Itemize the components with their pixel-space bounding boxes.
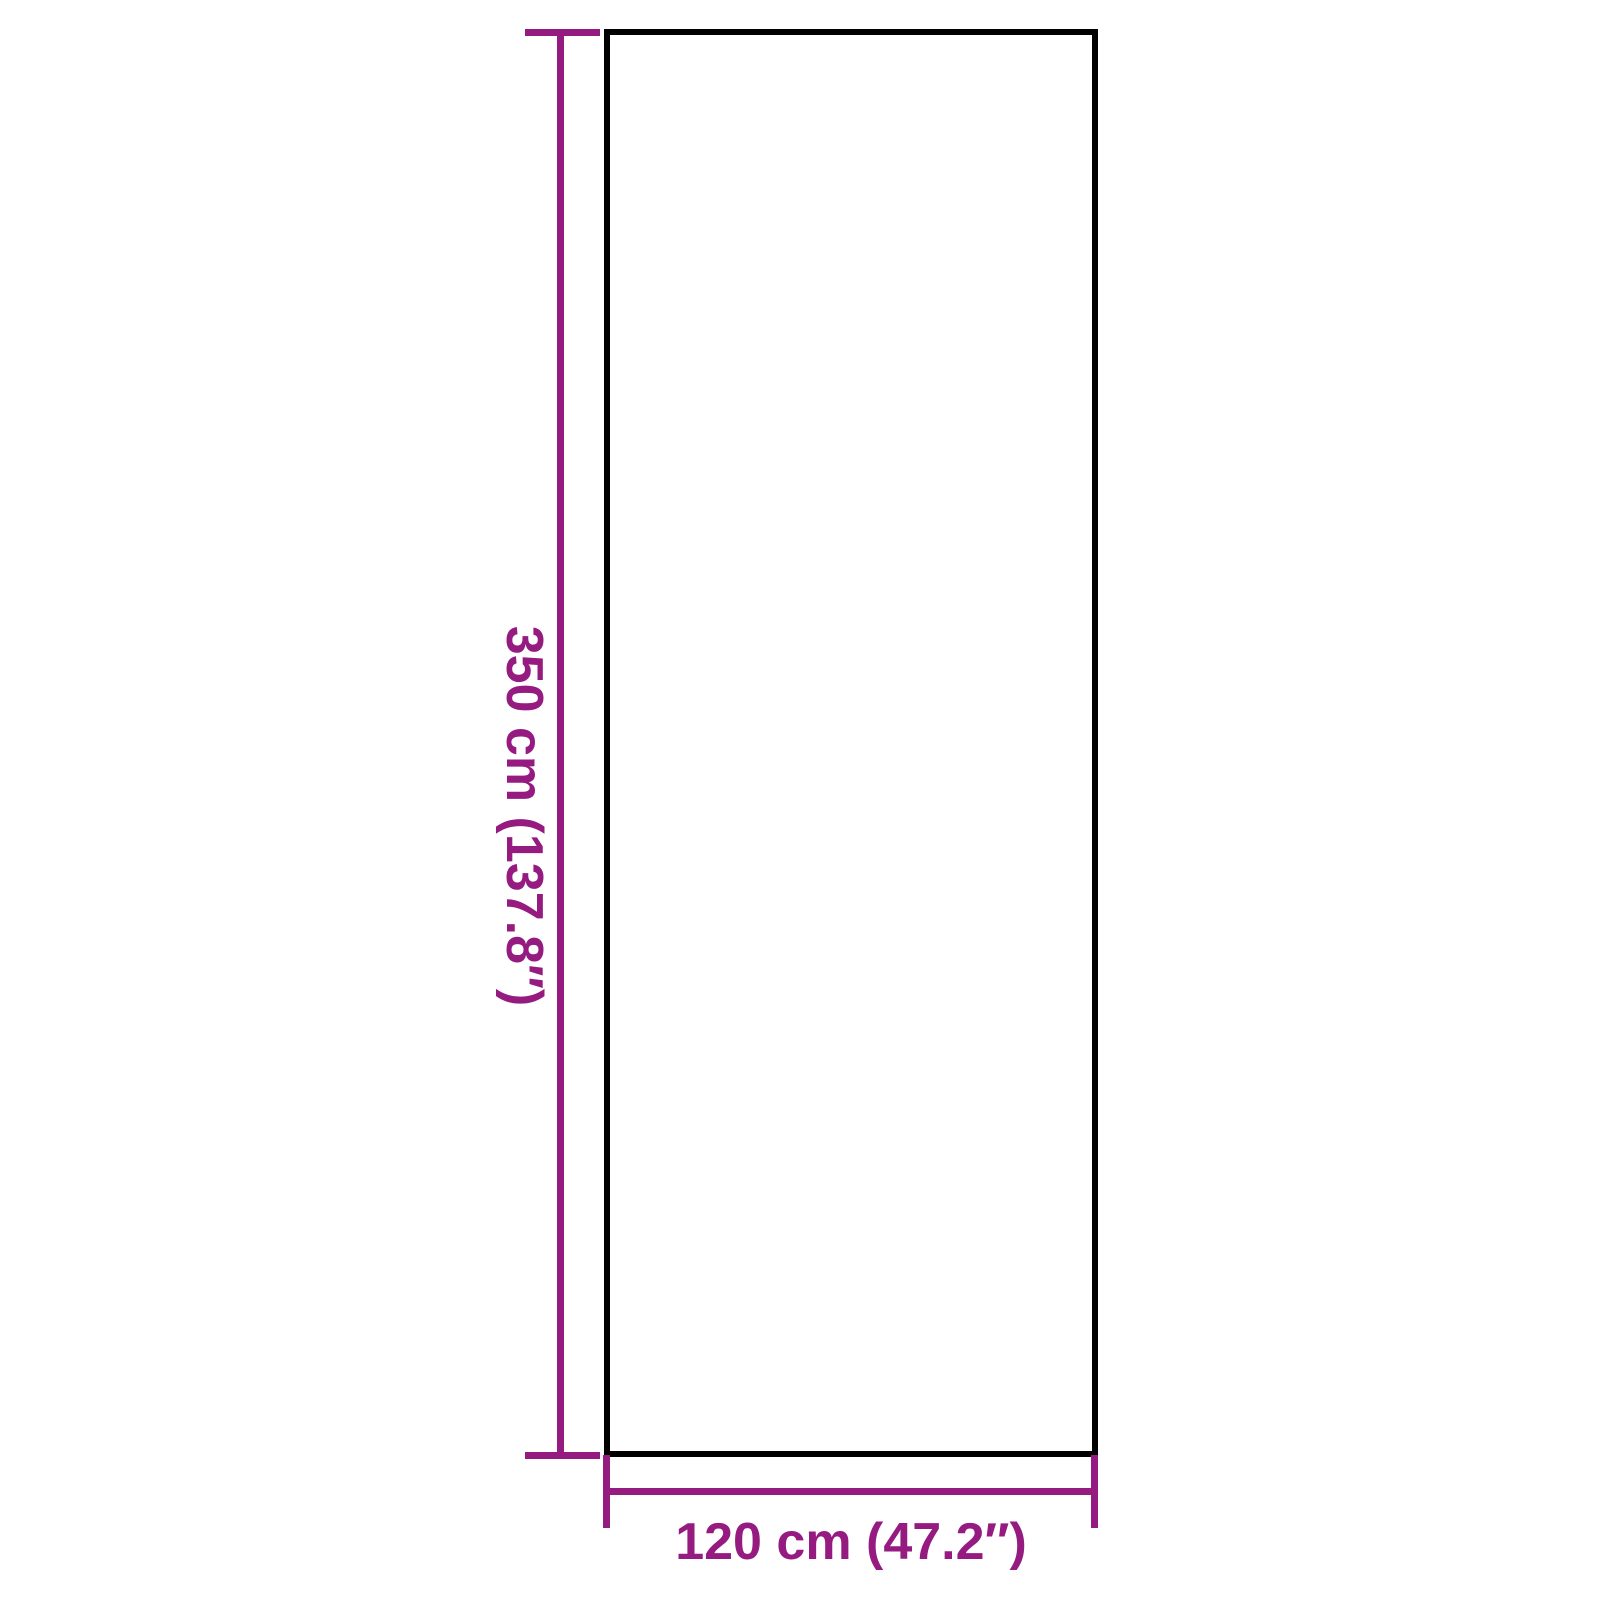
dimension-diagram: 350 cm (137.8″) 120 cm (47.2″): [0, 0, 1600, 1600]
height-dimension-top-cap: [525, 29, 600, 36]
product-outline-rectangle: [604, 29, 1098, 1457]
page-background: { "colors": { "accent": "#951B81", "outl…: [0, 0, 1600, 1600]
width-dimension-line: [604, 1488, 1098, 1495]
height-dimension-line: [557, 29, 564, 1459]
height-dimension-bottom-cap: [525, 1452, 600, 1459]
height-dimension-label: 350 cm (137.8″): [494, 566, 554, 1066]
width-dimension-label: 120 cm (47.2″): [604, 1512, 1098, 1572]
